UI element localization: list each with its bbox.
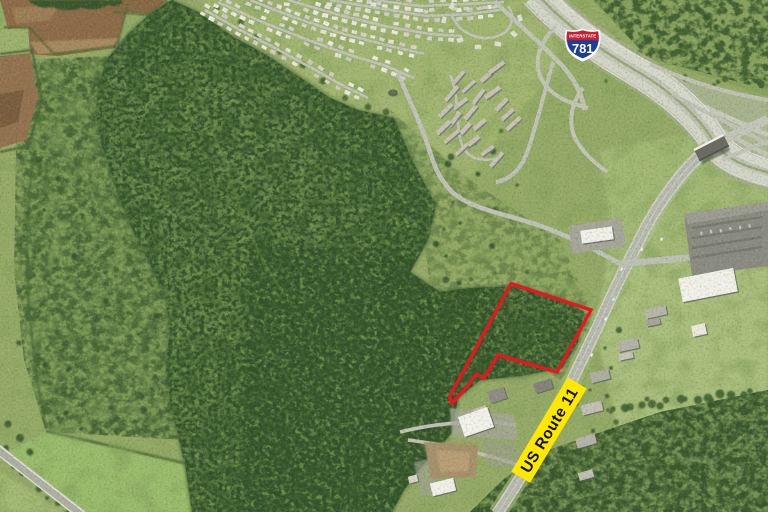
svg-text:781: 781: [572, 41, 594, 56]
svg-text:INTERSTATE: INTERSTATE: [569, 34, 596, 39]
